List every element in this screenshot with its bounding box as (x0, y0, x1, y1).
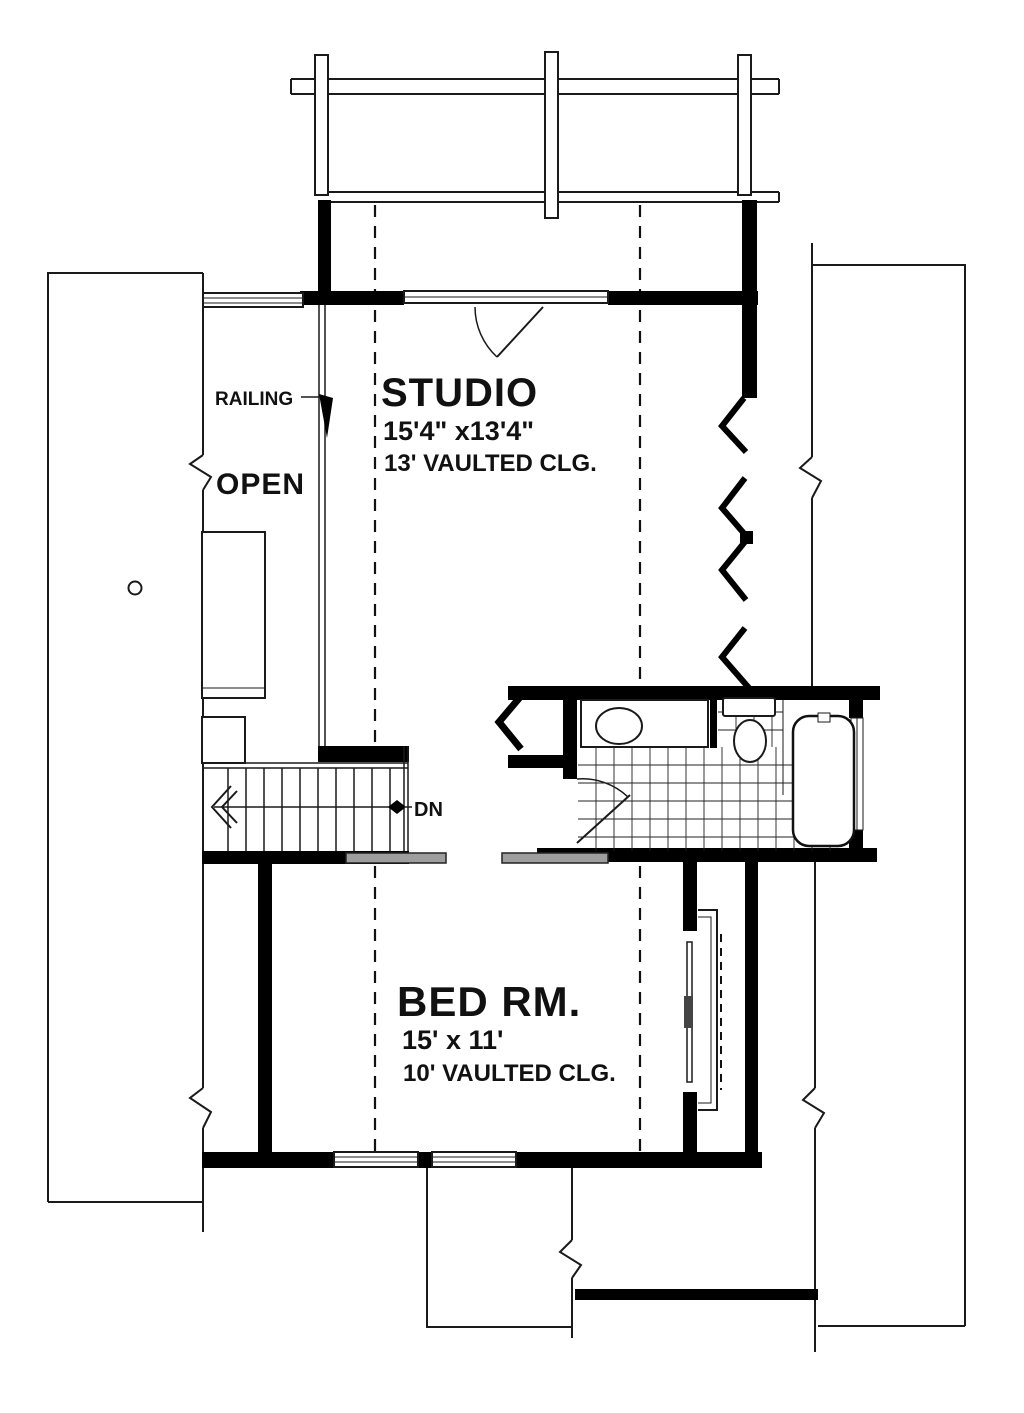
railing-label: RAILING (215, 389, 293, 410)
lower-floor-counter (202, 717, 245, 763)
loft-railing (319, 305, 325, 746)
studio-dimensions: 15'4" x13'4" (383, 416, 534, 446)
tub-faucet (818, 713, 830, 722)
threshold (502, 853, 608, 863)
stair-treads (228, 768, 390, 851)
open-label: OPEN (216, 468, 305, 501)
bedroom-dimensions: 15' x 11' (402, 1025, 503, 1055)
railing-post (315, 55, 328, 195)
studio-label: STUDIO (381, 371, 538, 415)
loft-window (203, 293, 303, 307)
floor-plan-drawing: RAILING OPEN STUDIO 15'4" x13'4" 13' VAU… (0, 0, 1024, 1413)
break-symbol (560, 1240, 581, 1278)
break-symbol (800, 457, 821, 498)
alcove-bottom-wall (508, 755, 577, 768)
break-symbol (190, 455, 211, 490)
lower-floor-cabinet (202, 532, 265, 698)
door-swing-arc (475, 307, 497, 357)
walls (202, 200, 880, 1300)
bedroom-label: BED RM. (397, 978, 581, 1025)
bedroom-window-left (334, 1152, 418, 1167)
bathroom-right-wall-top (849, 700, 863, 718)
studio-ceiling: 13' VAULTED CLG. (384, 450, 597, 477)
left-roof-outline (48, 273, 211, 1232)
threshold (346, 853, 446, 863)
sink-vanity (581, 700, 708, 747)
toilet-partition (710, 690, 717, 748)
closet-frame (698, 910, 717, 1110)
door-leaf (497, 307, 543, 357)
bathroom-door (577, 779, 630, 843)
closet-wall-stub-bottom (683, 1092, 697, 1165)
bathtub (793, 713, 854, 846)
break-symbol (190, 1088, 211, 1128)
alcove-break-arrow (499, 696, 521, 749)
stair-down-label: DN (414, 799, 443, 821)
door-swing-arc (577, 779, 628, 797)
bedroom-right-wall (745, 858, 758, 1165)
studio-top-wall-right (608, 291, 758, 305)
break-symbol (803, 1088, 824, 1128)
sink (596, 708, 642, 744)
railing-post (545, 52, 558, 218)
deck-left-wall (318, 200, 331, 292)
railing-post (738, 55, 751, 195)
lower-level-wall (575, 1289, 818, 1300)
annotations: RAILING OPEN STUDIO 15'4" x13'4" 13' VAU… (215, 371, 616, 1087)
loft-open-area (129, 305, 334, 763)
post-column (129, 582, 142, 595)
closet-wall-stub-top (683, 858, 697, 931)
stair-top-edge (202, 763, 408, 768)
railing-leader-arrow (319, 394, 333, 438)
studio-door-sill (404, 291, 608, 303)
railing-top-rail (291, 79, 779, 94)
studio-top-wall-left (300, 291, 404, 305)
bedroom-left-wall (258, 862, 272, 1165)
closet-door-handle (684, 996, 693, 1028)
deck-railing (291, 52, 779, 218)
stair-head-wall (318, 746, 409, 762)
bedroom-window-right (432, 1152, 516, 1167)
bedroom-ceiling: 10' VAULTED CLG. (403, 1060, 616, 1087)
bedroom-closet (684, 910, 721, 1110)
lower-deck-outline (427, 1168, 581, 1338)
studio-door (475, 307, 543, 357)
floor-plan-page: RAILING OPEN STUDIO 15'4" x13'4" 13' VAU… (0, 0, 1024, 1413)
